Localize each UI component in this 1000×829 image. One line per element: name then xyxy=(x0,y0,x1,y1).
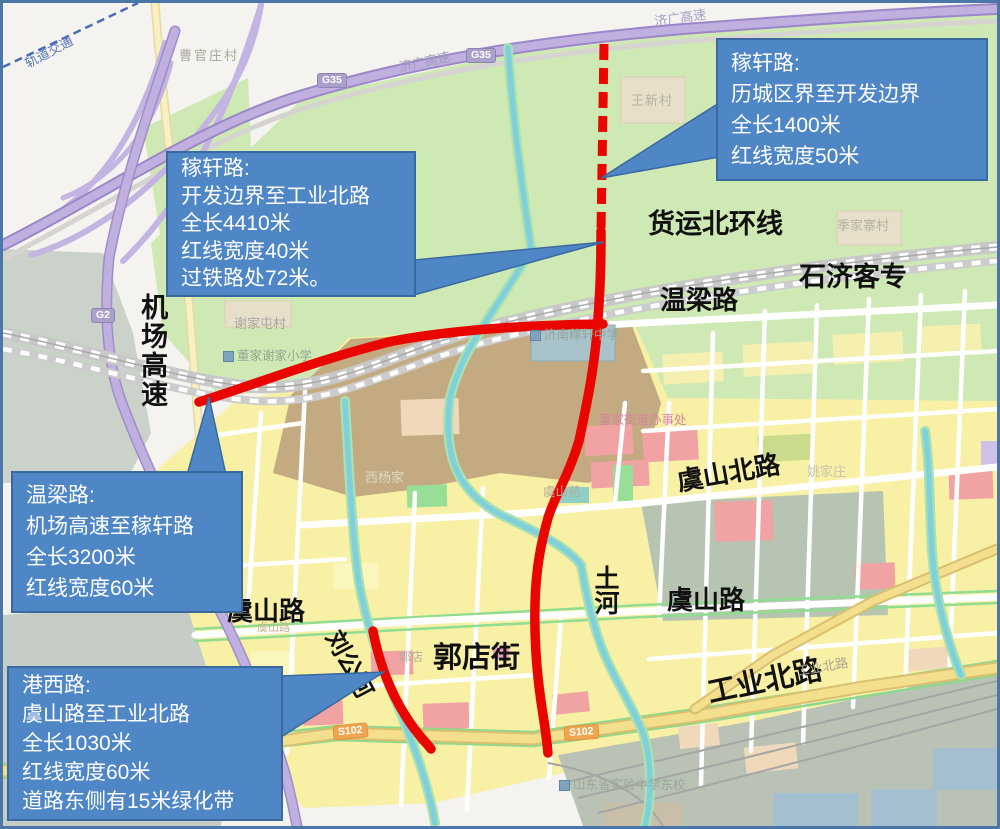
planning-map: 机场高速 货运北环线 温梁路 石济客专 虞山北路 虞山路 虞山路 土河 郭店街 … xyxy=(0,0,1000,829)
callout-line: 红线宽度50米 xyxy=(731,141,976,172)
callout-line: 开发边界至工业北路 xyxy=(181,183,404,211)
callout-line: 全长1030米 xyxy=(22,729,271,758)
callout-jiaxuan-road-south: 稼轩路: 开发边界至工业北路 全长4410米 红线宽度40米 过铁路处72米。 xyxy=(166,151,416,297)
callout-title: 稼轩路: xyxy=(731,48,976,79)
callout-line: 红线宽度60米 xyxy=(22,758,271,787)
callout-line: 道路东侧有15米绿化带 xyxy=(22,787,271,816)
callout-wenliang-road: 温梁路: 机场高速至稼轩路 全长3200米 红线宽度60米 xyxy=(11,471,243,613)
callout-pointer-wenliang xyxy=(187,397,226,475)
callout-line: 红线宽度40米 xyxy=(181,238,404,266)
callout-line: 全长4410米 xyxy=(181,210,404,238)
callout-line: 历城区界至开发边界 xyxy=(731,79,976,110)
callout-title: 港西路: xyxy=(22,671,271,700)
callout-pointer-gangxi xyxy=(281,672,384,737)
callout-line: 虞山路至工业北路 xyxy=(22,700,271,729)
callout-gangxi-road: 港西路: 虞山路至工业北路 全长1030米 红线宽度60米 道路东侧有15米绿化… xyxy=(7,666,283,821)
callout-jiaxuan-road-north: 稼轩路: 历城区界至开发边界 全长1400米 红线宽度50米 xyxy=(716,38,988,181)
callout-pointer-jiaxuan-north xyxy=(601,103,719,178)
callout-line: 全长1400米 xyxy=(731,110,976,141)
callout-line: 红线宽度60米 xyxy=(26,573,231,604)
callout-line: 机场高速至稼轩路 xyxy=(26,511,231,542)
callout-title: 温梁路: xyxy=(26,480,231,511)
callout-title: 稼轩路: xyxy=(181,155,404,183)
callout-pointer-jiaxuan-south xyxy=(414,242,604,295)
callout-line: 过铁路处72米。 xyxy=(181,265,404,293)
callout-line: 全长3200米 xyxy=(26,542,231,573)
